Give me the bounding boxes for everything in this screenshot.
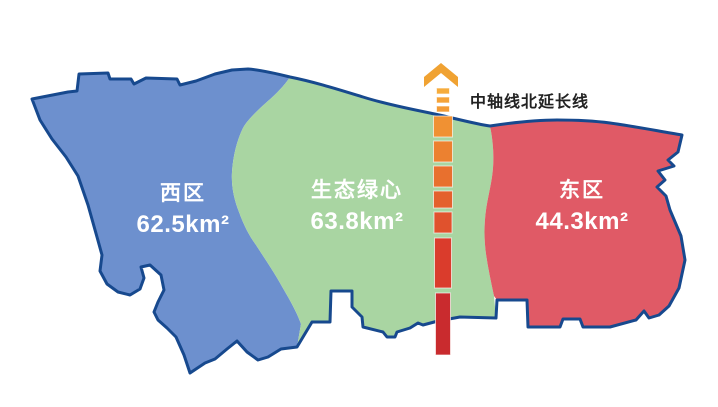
axis-arrow-up-icon — [424, 63, 458, 87]
axis-dash-segment — [436, 293, 451, 355]
axis-dash-segment — [434, 141, 453, 162]
city-map — [0, 0, 718, 407]
axis-dash-segment — [437, 88, 450, 94]
region-east-district — [485, 120, 686, 327]
axis-dash-segment — [437, 97, 450, 103]
axis-dash-segment — [434, 191, 453, 208]
axis-dash-segment — [435, 238, 452, 288]
axis-dash-line — [434, 88, 453, 355]
axis-dash-segment — [434, 116, 453, 137]
axis-dash-segment — [434, 166, 453, 187]
infographic-canvas: 西区 62.5km² 生态绿心 63.8km² 东区 44.3km² 中轴线北延… — [0, 0, 718, 407]
axis-dash-segment — [434, 212, 452, 233]
axis-dash-segment — [437, 106, 450, 112]
